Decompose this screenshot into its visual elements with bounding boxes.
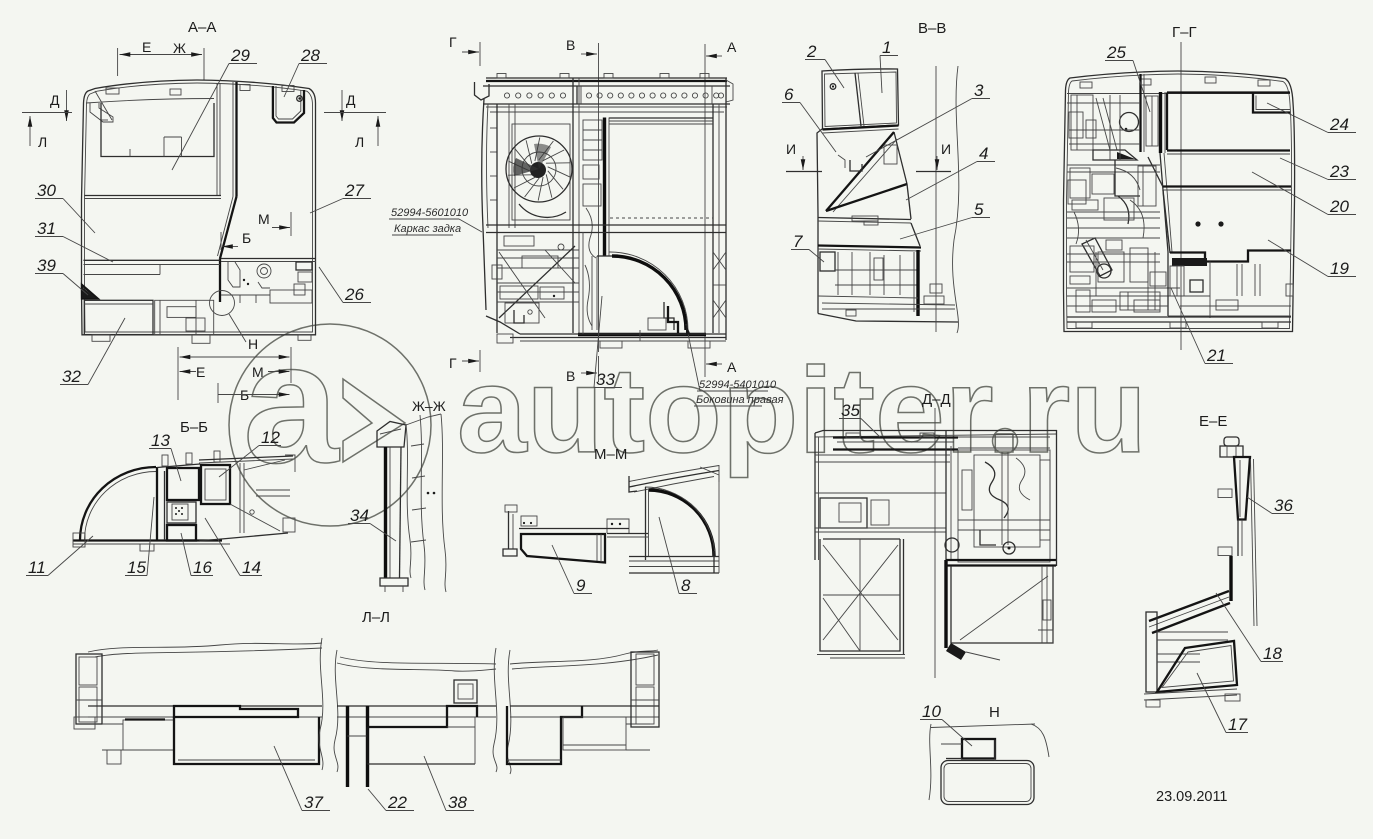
svg-text:М–М: М–М [594, 446, 627, 463]
svg-text:2: 2 [806, 42, 817, 61]
svg-text:29: 29 [230, 46, 250, 65]
svg-text:Л–Л: Л–Л [362, 609, 390, 626]
svg-text:autopiter.ru: autopiter.ru [457, 342, 1147, 478]
svg-text:35: 35 [841, 401, 860, 420]
svg-text:18: 18 [1263, 644, 1282, 663]
svg-text:26: 26 [344, 285, 364, 304]
svg-text:31: 31 [37, 219, 56, 238]
svg-text:22: 22 [387, 793, 407, 812]
svg-text:Е: Е [142, 39, 151, 55]
svg-text:19: 19 [1330, 259, 1349, 278]
svg-text:М: М [258, 211, 270, 227]
svg-text:28: 28 [300, 46, 320, 65]
svg-text:37: 37 [304, 793, 323, 812]
svg-text:Н: Н [989, 704, 1000, 721]
svg-text:17: 17 [1228, 715, 1247, 734]
svg-text:1: 1 [882, 38, 891, 57]
svg-text:Каркас задка: Каркас задка [394, 223, 461, 235]
svg-text:Б: Б [242, 230, 251, 246]
svg-text:А: А [727, 39, 737, 55]
svg-text:30: 30 [37, 181, 56, 200]
svg-text:20: 20 [1329, 197, 1349, 216]
svg-text:Л: Л [355, 134, 364, 150]
svg-text:Г: Г [449, 355, 457, 371]
svg-text:9: 9 [576, 576, 586, 595]
svg-text:52994-5601010: 52994-5601010 [391, 207, 469, 219]
svg-text:14: 14 [242, 558, 261, 577]
svg-text:М: М [252, 364, 264, 380]
svg-text:39: 39 [37, 256, 56, 275]
svg-text:4: 4 [979, 144, 988, 163]
svg-text:52994-5401010: 52994-5401010 [699, 379, 777, 391]
svg-text:8: 8 [681, 576, 691, 595]
svg-text:12: 12 [261, 428, 280, 447]
svg-text:34: 34 [350, 506, 369, 525]
svg-text:7: 7 [793, 232, 803, 251]
svg-text:А–А: А–А [188, 19, 216, 36]
svg-text:33: 33 [596, 370, 615, 389]
svg-text:25: 25 [1106, 43, 1126, 62]
svg-text:Б–Б: Б–Б [180, 419, 208, 436]
svg-text:23: 23 [1329, 162, 1349, 181]
svg-text:Г: Г [449, 34, 457, 50]
svg-text:24: 24 [1329, 115, 1349, 134]
svg-text:3: 3 [974, 81, 984, 100]
svg-text:27: 27 [344, 181, 364, 200]
svg-text:38: 38 [448, 793, 467, 812]
svg-text:21: 21 [1206, 346, 1226, 365]
svg-text:6: 6 [784, 85, 794, 104]
svg-text:А: А [727, 359, 737, 375]
svg-text:И: И [786, 141, 796, 157]
svg-text:5: 5 [974, 200, 984, 219]
svg-text:13: 13 [151, 431, 170, 450]
svg-text:16: 16 [193, 558, 212, 577]
svg-text:Е–Е: Е–Е [1199, 413, 1227, 430]
svg-text:Н: Н [248, 336, 258, 352]
svg-text:36: 36 [1274, 496, 1293, 515]
svg-text:Ж–Ж: Ж–Ж [412, 398, 446, 414]
svg-text:Д–Д: Д–Д [922, 391, 951, 408]
svg-text:Ж: Ж [173, 40, 186, 56]
svg-text:11: 11 [28, 558, 46, 577]
svg-text:Е: Е [196, 364, 205, 380]
svg-text:Л: Л [38, 134, 47, 150]
svg-text:В: В [566, 37, 575, 53]
svg-text:10: 10 [922, 702, 941, 721]
svg-text:В–В: В–В [918, 20, 946, 37]
svg-text:И: И [941, 141, 951, 157]
svg-text:32: 32 [62, 367, 81, 386]
svg-text:15: 15 [127, 558, 146, 577]
svg-text:23.09.2011: 23.09.2011 [1156, 789, 1228, 805]
svg-text:Д: Д [346, 92, 356, 108]
svg-text:В: В [566, 368, 575, 384]
svg-text:Б: Б [240, 387, 249, 403]
svg-text:Боковина правая: Боковина правая [696, 394, 784, 406]
svg-text:Д: Д [50, 92, 60, 108]
svg-text:Г–Г: Г–Г [1172, 24, 1197, 41]
